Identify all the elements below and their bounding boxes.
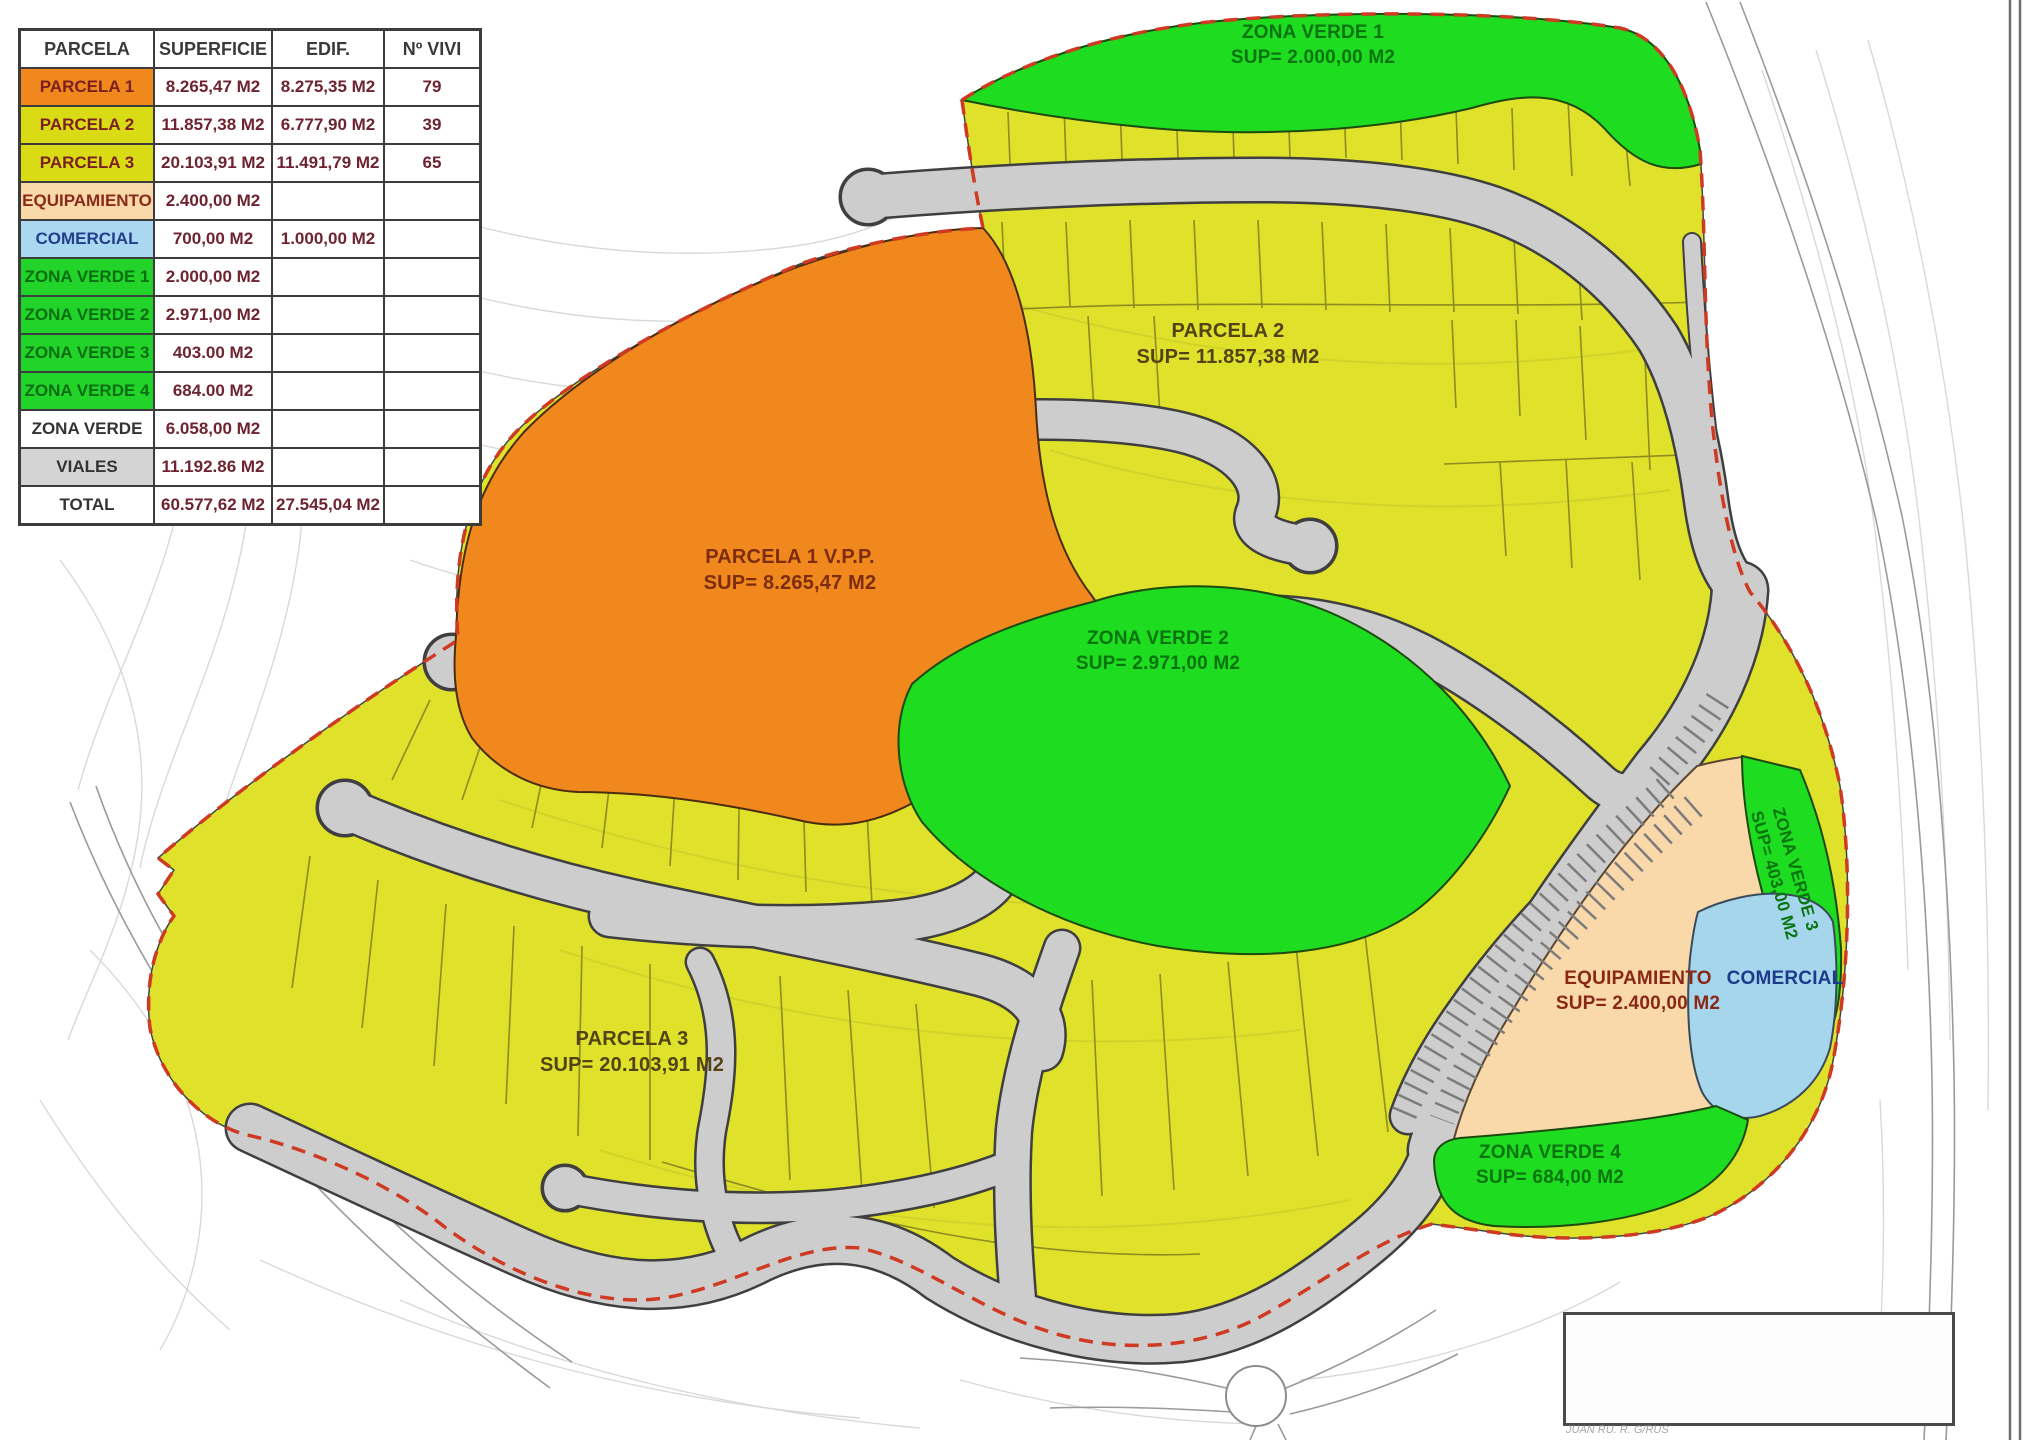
table-header-cell: EDIF. xyxy=(272,30,384,68)
table-cell: ZONA VERDE 2 xyxy=(20,296,154,334)
table-cell: PARCELA 1 xyxy=(20,68,154,106)
table-cell: 8.265,47 M2 xyxy=(154,68,272,106)
label-parcela-2: PARCELA 2 SUP= 11.857,38 M2 xyxy=(1068,318,1388,371)
table-header-cell: PARCELA xyxy=(20,30,154,68)
table-cell: 20.103,91 M2 xyxy=(154,144,272,182)
table-row: PARCELA 3 20.103,91 M2 11.491,79 M2 65 xyxy=(20,144,480,182)
table-row: VIALES 11.192.86 M2 xyxy=(20,448,480,486)
table-row: PARCELA 2 11.857,38 M2 6.777,90 M2 39 xyxy=(20,106,480,144)
zone-sup: SUP= 684,00 M2 xyxy=(1390,1165,1710,1190)
table-cell: 700,00 M2 xyxy=(154,220,272,258)
table-cell xyxy=(384,296,480,334)
table-row: ZONA VERDE 3 403.00 M2 xyxy=(20,334,480,372)
table-cell xyxy=(272,448,384,486)
table-cell: 8.275,35 M2 xyxy=(272,68,384,106)
table-cell: 6.777,90 M2 xyxy=(272,106,384,144)
table-cell: 1.000,00 M2 xyxy=(272,220,384,258)
zone-name: ZONA VERDE 2 xyxy=(998,626,1318,651)
table-row: PARCELA 1 8.265,47 M2 8.275,35 M2 79 xyxy=(20,68,480,106)
table-row: ZONA VERDE 6.058,00 M2 xyxy=(20,410,480,448)
table-cell: 2.400,00 M2 xyxy=(154,182,272,220)
table-cell xyxy=(384,258,480,296)
table-row: COMERCIAL 700,00 M2 1.000,00 M2 xyxy=(20,220,480,258)
table-cell: 11.857,38 M2 xyxy=(154,106,272,144)
table-row: EQUIPAMIENTO 2.400,00 M2 xyxy=(20,182,480,220)
table-cell: COMERCIAL xyxy=(20,220,154,258)
table-cell: 60.577,62 M2 xyxy=(154,486,272,524)
zone-name: ZONA VERDE 4 xyxy=(1390,1140,1710,1165)
table-cell: 403.00 M2 xyxy=(154,334,272,372)
title-block-signature: JUAN RU. R. G/RUS xyxy=(1566,1424,1669,1436)
table-header-cell: SUPERFICIE xyxy=(154,30,272,68)
table-cell xyxy=(272,182,384,220)
table-cell: PARCELA 2 xyxy=(20,106,154,144)
site-plan-sheet: PARCELA SUPERFICIE EDIF. Nº VIVI PARCELA… xyxy=(0,0,2033,1440)
table-cell xyxy=(384,372,480,410)
table-row: ZONA VERDE 1 2.000,00 M2 xyxy=(20,258,480,296)
table-cell: PARCELA 3 xyxy=(20,144,154,182)
table-cell: TOTAL xyxy=(20,486,154,524)
label-zona-verde-1: ZONA VERDE 1 SUP= 2.000,00 M2 xyxy=(1153,20,1473,70)
zone-sup: SUP= 8.265,47 M2 xyxy=(630,570,950,596)
sheet-frame xyxy=(2010,0,2020,1440)
table-cell: 11.491,79 M2 xyxy=(272,144,384,182)
table-cell: ZONA VERDE 1 xyxy=(20,258,154,296)
table-cell: 39 xyxy=(384,106,480,144)
label-parcela-1: PARCELA 1 V.P.P. SUP= 8.265,47 M2 xyxy=(630,544,950,597)
label-parcela-3: PARCELA 3 SUP= 20.103,91 M2 xyxy=(472,1026,792,1079)
table-cell xyxy=(272,334,384,372)
summary-table: PARCELA SUPERFICIE EDIF. Nº VIVI PARCELA… xyxy=(18,28,482,526)
zone-sup: SUP= 2.000,00 M2 xyxy=(1153,45,1473,70)
label-zona-verde-2: ZONA VERDE 2 SUP= 2.971,00 M2 xyxy=(998,626,1318,676)
table-header-row: PARCELA SUPERFICIE EDIF. Nº VIVI xyxy=(20,30,480,68)
table-cell xyxy=(272,258,384,296)
table-cell: 11.192.86 M2 xyxy=(154,448,272,486)
table-row: ZONA VERDE 4 684.00 M2 xyxy=(20,372,480,410)
zone-sup: SUP= 20.103,91 M2 xyxy=(472,1052,792,1078)
table-cell xyxy=(384,448,480,486)
table-cell: ZONA VERDE 3 xyxy=(20,334,154,372)
zone-name: COMERCIAL xyxy=(1625,966,1945,991)
table-cell: 6.058,00 M2 xyxy=(154,410,272,448)
table-cell xyxy=(272,410,384,448)
table-cell: 2.000,00 M2 xyxy=(154,258,272,296)
table-cell xyxy=(384,410,480,448)
zone-sup: SUP= 2.971,00 M2 xyxy=(998,651,1318,676)
label-comercial: COMERCIAL xyxy=(1625,966,1945,991)
label-zona-verde-4: ZONA VERDE 4 SUP= 684,00 M2 xyxy=(1390,1140,1710,1190)
table-cell: ZONA VERDE xyxy=(20,410,154,448)
table-cell: 2.971,00 M2 xyxy=(154,296,272,334)
table-cell xyxy=(384,182,480,220)
zone-sup: SUP= 2.400,00 M2 xyxy=(1478,991,1798,1016)
table-cell: 65 xyxy=(384,144,480,182)
table-cell: EQUIPAMIENTO xyxy=(20,182,154,220)
title-block xyxy=(1563,1312,1955,1426)
roundabout xyxy=(1226,1366,1286,1426)
zone-name: PARCELA 3 xyxy=(472,1026,792,1052)
zone-name: ZONA VERDE 1 xyxy=(1153,20,1473,45)
table-cell: 79 xyxy=(384,68,480,106)
zone-name: PARCELA 2 xyxy=(1068,318,1388,344)
table-cell xyxy=(384,334,480,372)
table-cell xyxy=(272,372,384,410)
table-cell: ZONA VERDE 4 xyxy=(20,372,154,410)
zone-sup: SUP= 11.857,38 M2 xyxy=(1068,344,1388,370)
table-row: TOTAL 60.577,62 M2 27.545,04 M2 xyxy=(20,486,480,524)
table-cell xyxy=(384,486,480,524)
table-cell xyxy=(272,296,384,334)
table-row: ZONA VERDE 2 2.971,00 M2 xyxy=(20,296,480,334)
table-cell: 684.00 M2 xyxy=(154,372,272,410)
zone-name: PARCELA 1 V.P.P. xyxy=(630,544,950,570)
table-cell xyxy=(384,220,480,258)
table-cell: 27.545,04 M2 xyxy=(272,486,384,524)
table-header-cell: Nº VIVI xyxy=(384,30,480,68)
table-cell: VIALES xyxy=(20,448,154,486)
